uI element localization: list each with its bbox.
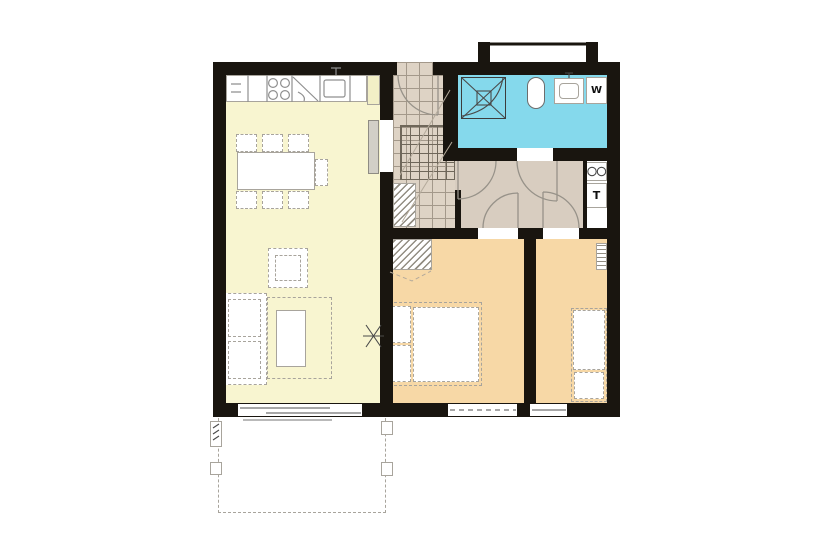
living-vestibule-wall-upper	[380, 75, 393, 120]
dryer-label: T	[587, 184, 606, 207]
hotplate-unit	[586, 162, 607, 181]
dining-table	[237, 152, 315, 190]
kitchen-counter	[226, 75, 367, 102]
exterior-wall-left	[213, 62, 226, 417]
terrace-outline	[218, 418, 386, 513]
hallway-bedroom-wall-a	[380, 228, 478, 239]
bedroom-divider-wall	[524, 228, 536, 403]
dryer: T	[586, 183, 607, 208]
bed-pillow	[392, 306, 411, 343]
exterior-wall-right	[607, 62, 620, 417]
exterior-wall-top-left	[213, 62, 397, 75]
bed-duvet	[573, 310, 605, 370]
bathroom-hallway-wall-left	[443, 148, 517, 161]
terrace-post	[210, 462, 222, 475]
terrace-post	[381, 421, 393, 435]
terrace-post	[381, 462, 393, 476]
dining-chair	[236, 191, 257, 209]
bedroom-1-window	[448, 404, 517, 416]
bay-cap-right	[586, 42, 598, 63]
coffee-table	[276, 310, 306, 367]
sliding-door-leaf	[368, 120, 379, 174]
bathroom-hallway-wall-right	[553, 148, 620, 161]
dining-chair	[288, 134, 309, 152]
kitchen-tall-cabinet	[367, 75, 380, 105]
toilet	[527, 77, 545, 109]
exterior-wall-top-right	[433, 62, 620, 75]
sofa-cushion	[228, 341, 261, 379]
bedroom-2-window	[530, 404, 567, 416]
vestibule-bathroom-wall	[443, 75, 458, 148]
sliding-door-opening	[380, 120, 393, 172]
radiator	[596, 243, 607, 270]
dining-chair	[236, 134, 257, 152]
bed-pillow	[574, 372, 604, 399]
bed-duvet	[413, 307, 479, 382]
washing-machine-label: W	[587, 78, 606, 103]
living-bedroom1-wall	[380, 172, 393, 403]
shower	[461, 77, 506, 119]
vestibule-closet	[393, 183, 416, 227]
bay-cap-left	[478, 42, 490, 63]
dining-chair	[262, 134, 283, 152]
vestibule-hallway-wall	[455, 190, 461, 228]
dining-chair	[262, 191, 283, 209]
washbasin-bowl	[559, 83, 579, 99]
bed-pillow	[392, 345, 411, 382]
hallway-bedroom-wall-c	[579, 228, 620, 239]
washing-machine: W	[586, 77, 607, 104]
dining-chair	[315, 159, 328, 186]
niche-wall	[583, 161, 587, 228]
hallway-floor	[455, 161, 583, 228]
bedroom-1-wardrobe	[388, 239, 432, 270]
armchair-cushion	[275, 255, 301, 281]
terrace-post-downspout	[210, 421, 222, 447]
floor-plan: W T	[0, 0, 831, 555]
sofa-cushion	[228, 299, 261, 337]
dining-chair	[288, 191, 309, 209]
terrace-sliding-door	[238, 404, 362, 416]
